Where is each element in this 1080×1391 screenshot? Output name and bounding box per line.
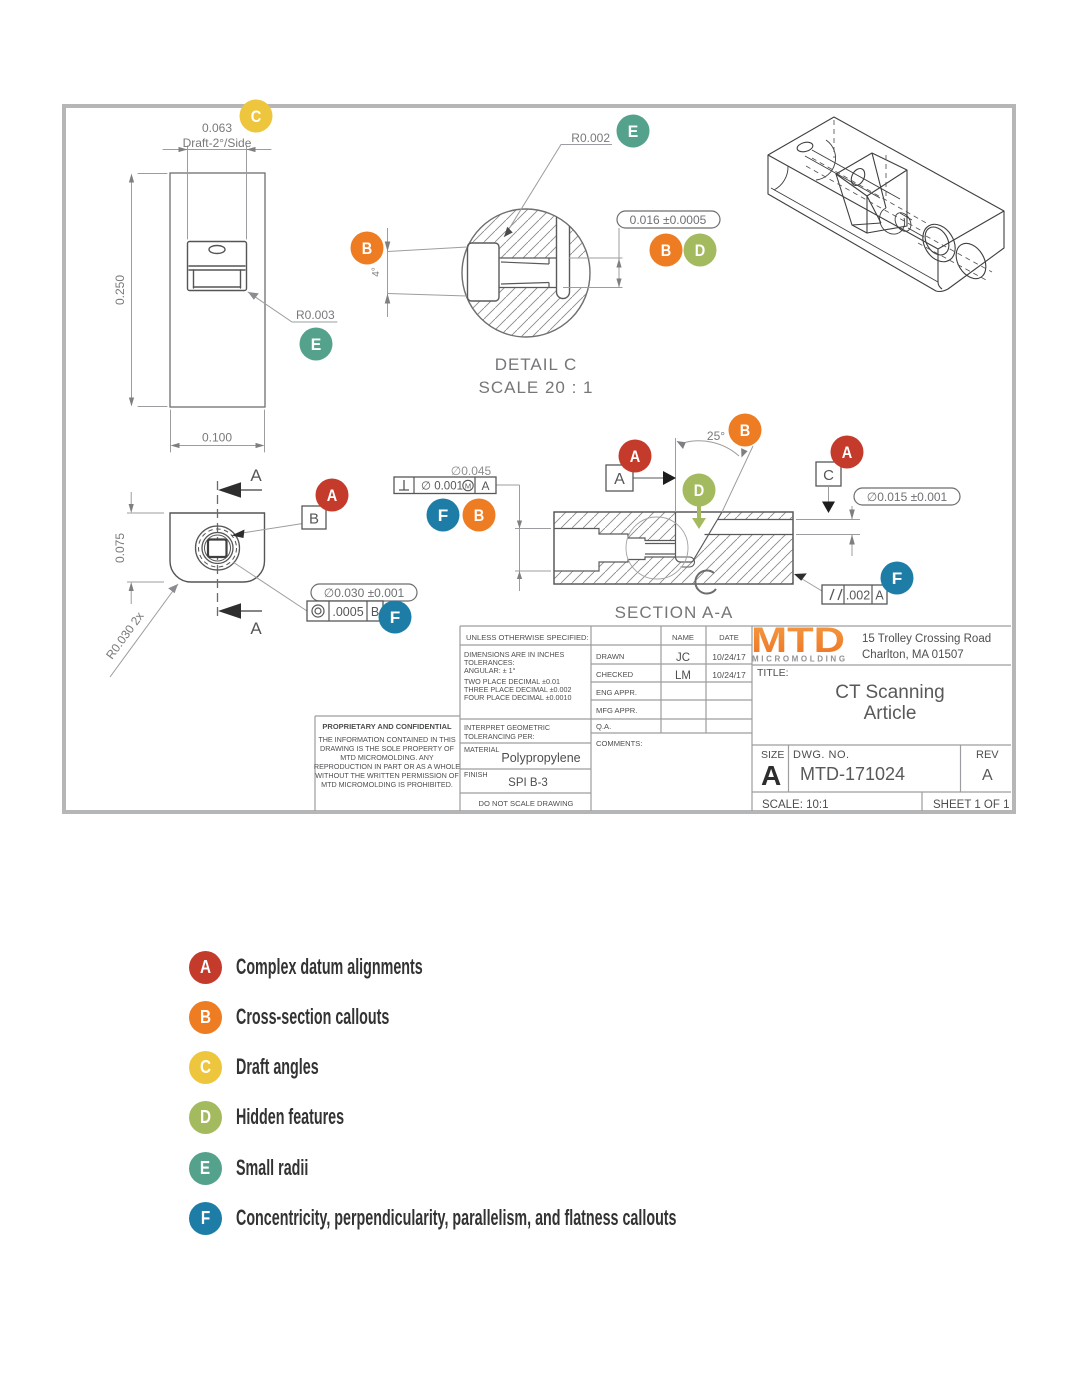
svg-text:FOUR PLACE DECIMAL ±0.0010: FOUR PLACE DECIMAL ±0.0010 bbox=[464, 693, 572, 702]
svg-text:REPRODUCTION IN PART OR AS A W: REPRODUCTION IN PART OR AS A WHOLE bbox=[314, 762, 460, 771]
svg-text:Article: Article bbox=[864, 703, 917, 724]
svg-text:MTD MICROMOLDING. ANY: MTD MICROMOLDING. ANY bbox=[340, 753, 434, 762]
svg-text:DETAIL C: DETAIL C bbox=[495, 355, 578, 374]
svg-text:A: A bbox=[250, 619, 262, 638]
svg-text:B: B bbox=[362, 239, 373, 258]
svg-text:ANGULAR: ± 1°: ANGULAR: ± 1° bbox=[464, 666, 516, 675]
svg-text:SCALE: 10:1: SCALE: 10:1 bbox=[762, 799, 828, 811]
svg-text:B: B bbox=[740, 421, 751, 440]
svg-text:PROPRIETARY AND CONFIDENTIAL: PROPRIETARY AND CONFIDENTIAL bbox=[322, 722, 452, 731]
svg-text:JC: JC bbox=[676, 652, 690, 664]
svg-text:MICROMOLDING: MICROMOLDING bbox=[752, 655, 848, 664]
svg-text:Draft-2°/Side: Draft-2°/Side bbox=[183, 136, 252, 150]
svg-text:MFG APPR.: MFG APPR. bbox=[596, 706, 637, 715]
svg-text:DATE: DATE bbox=[719, 633, 739, 642]
svg-text:F: F bbox=[892, 569, 903, 588]
svg-text:Polypropylene: Polypropylene bbox=[501, 751, 580, 765]
svg-text:A: A bbox=[327, 486, 338, 505]
svg-text:0.063: 0.063 bbox=[202, 121, 232, 135]
svg-text:MTD MICROMOLDING IS PROHIBITED: MTD MICROMOLDING IS PROHIBITED. bbox=[321, 780, 453, 789]
svg-text:MATERIAL: MATERIAL bbox=[464, 745, 499, 754]
svg-text:F: F bbox=[438, 506, 449, 525]
svg-text:R0.002: R0.002 bbox=[571, 131, 610, 145]
svg-text:F: F bbox=[390, 608, 401, 627]
svg-text:A: A bbox=[982, 767, 993, 784]
svg-text:Charlton, MA 01507: Charlton, MA 01507 bbox=[862, 649, 964, 661]
svg-text:A: A bbox=[875, 589, 884, 603]
svg-text:SHEET 1 OF 1: SHEET 1 OF 1 bbox=[933, 799, 1009, 811]
svg-text:∅0.045: ∅0.045 bbox=[451, 464, 492, 478]
svg-text:D: D bbox=[694, 481, 705, 500]
svg-text:A: A bbox=[250, 466, 262, 485]
svg-text:B: B bbox=[371, 605, 379, 619]
svg-text:TOLERANCING PER:: TOLERANCING PER: bbox=[464, 732, 535, 741]
svg-text:15 Trolley Crossing Road: 15 Trolley Crossing Road bbox=[862, 633, 991, 645]
svg-text:∅0.030 ±0.001: ∅0.030 ±0.001 bbox=[324, 586, 405, 600]
svg-text:R0.003: R0.003 bbox=[296, 308, 335, 322]
svg-text:LM: LM bbox=[675, 670, 691, 682]
svg-text:.0005: .0005 bbox=[332, 605, 363, 619]
svg-text:.002: .002 bbox=[846, 589, 870, 603]
svg-text:DRAWN: DRAWN bbox=[596, 652, 624, 661]
svg-text:A: A bbox=[761, 760, 781, 791]
svg-text:SECTION A-A: SECTION A-A bbox=[615, 603, 734, 622]
svg-text:DO NOT SCALE DRAWING: DO NOT SCALE DRAWING bbox=[479, 799, 574, 808]
svg-text:CHECKED: CHECKED bbox=[596, 670, 634, 679]
svg-text:10/24/17: 10/24/17 bbox=[712, 652, 746, 662]
svg-text:0.075: 0.075 bbox=[113, 533, 127, 563]
svg-text:TITLE:: TITLE: bbox=[757, 667, 789, 679]
svg-text:DRAWING IS THE SOLE PROPERTY O: DRAWING IS THE SOLE PROPERTY OF bbox=[320, 744, 455, 753]
svg-text:Q.A.: Q.A. bbox=[596, 722, 611, 731]
svg-text:REV: REV bbox=[976, 749, 999, 761]
svg-text:A: A bbox=[842, 443, 853, 462]
svg-text:THE INFORMATION CONTAINED IN T: THE INFORMATION CONTAINED IN THIS bbox=[318, 735, 456, 744]
svg-text:B: B bbox=[474, 506, 485, 525]
svg-text:SPI B-3: SPI B-3 bbox=[508, 777, 548, 789]
svg-text:ENG APPR.: ENG APPR. bbox=[596, 688, 637, 697]
svg-text:25°: 25° bbox=[707, 429, 725, 443]
svg-text:D: D bbox=[695, 241, 706, 260]
svg-text:A: A bbox=[614, 471, 625, 488]
svg-text:SCALE 20 : 1: SCALE 20 : 1 bbox=[478, 378, 593, 397]
svg-text:C: C bbox=[823, 467, 834, 484]
svg-text:0.250: 0.250 bbox=[113, 275, 127, 305]
svg-text:WITHOUT THE WRITTEN PERMISSION: WITHOUT THE WRITTEN PERMISSION OF bbox=[315, 771, 459, 780]
svg-text:B: B bbox=[661, 241, 672, 260]
svg-text:4°: 4° bbox=[371, 267, 382, 277]
svg-text:A: A bbox=[481, 479, 489, 493]
svg-text:MTD-171024: MTD-171024 bbox=[800, 764, 905, 784]
svg-text:10/24/17: 10/24/17 bbox=[712, 670, 746, 680]
svg-text:A: A bbox=[630, 447, 641, 466]
svg-text:DWG. NO.: DWG. NO. bbox=[793, 749, 850, 761]
svg-text:0.016 ±0.0005: 0.016 ±0.0005 bbox=[630, 213, 707, 227]
svg-text:FINISH: FINISH bbox=[464, 770, 488, 779]
svg-text:CT Scanning: CT Scanning bbox=[835, 682, 945, 703]
svg-text:C: C bbox=[251, 107, 262, 126]
svg-text:M: M bbox=[465, 482, 471, 491]
svg-text:NAME: NAME bbox=[672, 633, 694, 642]
svg-text:∅ 0.001: ∅ 0.001 bbox=[421, 481, 463, 493]
svg-text:E: E bbox=[628, 122, 639, 141]
svg-text:0.100: 0.100 bbox=[202, 431, 232, 445]
svg-text:B: B bbox=[309, 511, 319, 528]
svg-text:INTERPRET GEOMETRIC: INTERPRET GEOMETRIC bbox=[464, 723, 550, 732]
svg-text:UNLESS OTHERWISE SPECIFIED:: UNLESS OTHERWISE SPECIFIED: bbox=[466, 633, 589, 642]
svg-text:COMMENTS:: COMMENTS: bbox=[596, 739, 642, 748]
svg-text:∅0.015 ±0.001: ∅0.015 ±0.001 bbox=[867, 490, 948, 504]
svg-text:E: E bbox=[311, 335, 322, 354]
